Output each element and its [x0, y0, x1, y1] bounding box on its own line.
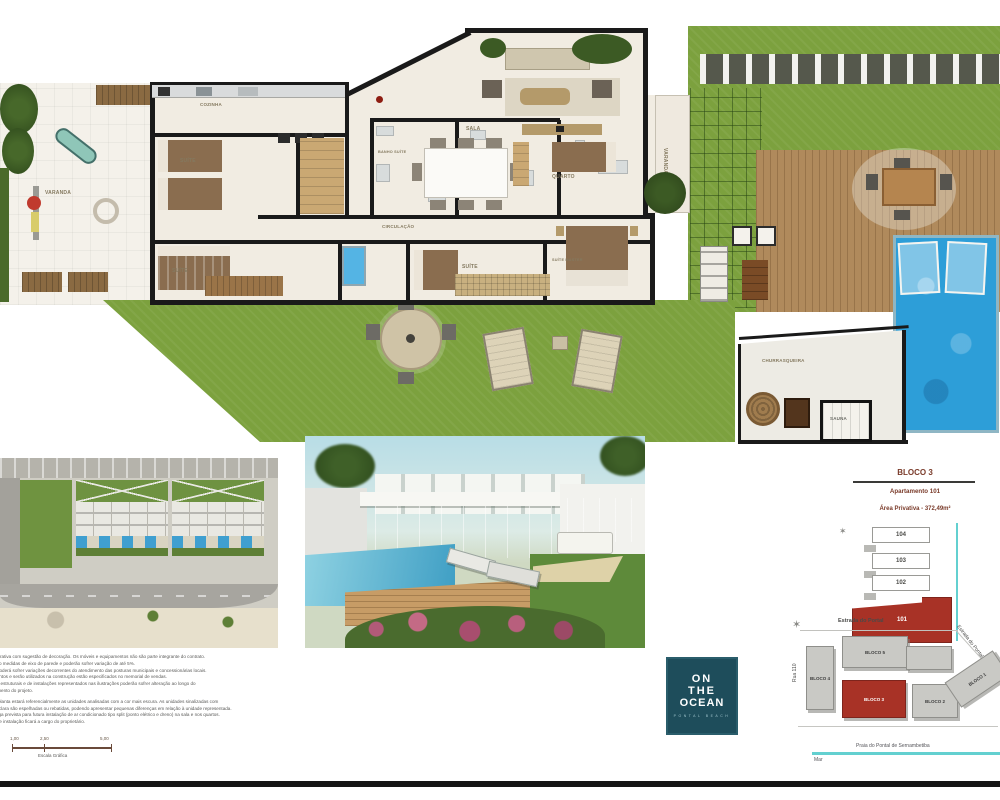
- planter-box: [732, 226, 752, 246]
- wall: [370, 120, 374, 215]
- bed-blanket: [566, 270, 628, 286]
- logo-line2: THE: [688, 686, 716, 697]
- dining-chair: [430, 200, 446, 210]
- stack-balcony: [864, 593, 876, 600]
- room-label: CIRCULAÇÃO: [382, 224, 414, 229]
- logo-line3: OCEAN: [680, 698, 725, 709]
- site-block-4: BLOCO 4: [806, 646, 834, 710]
- scale-bar: 1,00 2,50 5,00 Escala Gráfica: [10, 736, 140, 764]
- dining-chair: [486, 138, 502, 148]
- bloco-title: BLOCO 3: [845, 468, 985, 477]
- title-underline: [853, 481, 975, 483]
- exercise-board: [31, 212, 39, 232]
- aerial-building: [172, 502, 264, 536]
- garden-chair: [442, 324, 456, 340]
- wall: [370, 118, 560, 122]
- grill: [784, 398, 810, 428]
- stack-floor-label: 102: [896, 580, 906, 586]
- dining-chair: [458, 138, 474, 148]
- bench: [96, 85, 150, 105]
- bottom-rule: [0, 781, 1000, 787]
- wall: [406, 244, 410, 302]
- scale-tick-label: 5,00: [100, 736, 109, 741]
- wall: [150, 300, 655, 305]
- brochure-page: VARANDA CHURRASQUEIRA SAUNA: [0, 0, 1000, 800]
- room-label: SUÍTE: [172, 268, 188, 274]
- garden-cabinet: [742, 260, 768, 300]
- garden-chair: [366, 324, 380, 340]
- site-block-label: BLOCO 4: [810, 676, 830, 681]
- site-block-3-highlighted: BLOCO 3: [842, 680, 906, 718]
- disclaimer-line: camentos e serão utilizados na construçã…: [0, 674, 318, 681]
- disclaimer-line: entos estruturais e de instalações repre…: [0, 681, 318, 688]
- dining-table: [424, 148, 508, 198]
- render-table-chairs: [557, 532, 613, 554]
- outdoor-chair: [894, 158, 910, 168]
- aerial-green-roof: [76, 480, 168, 502]
- disclaimer-line: as são medidas de eixo de parede e poder…: [0, 661, 318, 668]
- disclaimer-line: entrega prevista para futura instalação …: [0, 712, 318, 719]
- aerial-green-roof: [172, 480, 264, 502]
- aerial-pools: [76, 536, 168, 548]
- render-palm: [315, 444, 375, 488]
- site-block-5-annex: [906, 646, 952, 670]
- disclaimer-line: ária poderá sofrer variações decorrentes…: [0, 668, 318, 675]
- scale-tick-label: 1,00: [10, 736, 19, 741]
- site-block-5: BLOCO 5: [842, 636, 908, 668]
- room-label: VARANDA: [45, 190, 71, 196]
- bed-pillow: [158, 178, 168, 210]
- bench: [68, 272, 108, 292]
- street-label-left: Rua 110: [792, 663, 798, 682]
- nightstand: [630, 226, 638, 236]
- aerial-top-buildings: [0, 458, 278, 478]
- stack-floor: 103: [872, 553, 930, 569]
- bed-pillow: [158, 246, 230, 256]
- coffee-table: [520, 88, 570, 105]
- shoreline: [812, 752, 1000, 755]
- disclaimer-line: mais clara são espelhadas ou rebatidas, …: [0, 706, 318, 713]
- bench: [205, 276, 283, 296]
- armchair: [482, 80, 502, 98]
- site-block-label: BLOCO 3: [864, 697, 884, 702]
- outdoor-table: [882, 168, 936, 206]
- aerial-site-plan: [0, 458, 278, 648]
- dining-chair: [458, 200, 474, 210]
- room-label: CHURRASQUEIRA: [762, 358, 805, 363]
- pool-lounger: [945, 241, 988, 295]
- dining-chair: [430, 138, 446, 148]
- stack-floor: 102: [872, 575, 930, 591]
- aerial-road-left: [0, 478, 20, 586]
- stack-floor-label: 104: [896, 532, 906, 538]
- exercise-ball: [27, 196, 41, 210]
- compass-icon: ✶: [839, 526, 847, 537]
- area-label: Área Privativa - 372,49m²: [845, 506, 985, 512]
- wicker-sofa: [455, 274, 550, 296]
- aerial-pools: [172, 536, 264, 548]
- bar-stool: [278, 133, 290, 143]
- tv: [556, 126, 564, 132]
- hedge: [0, 168, 9, 302]
- stack-balcony: [864, 545, 876, 552]
- sink: [196, 87, 212, 96]
- sea-label: Mar: [814, 757, 823, 763]
- entrance-marker: [376, 96, 383, 103]
- site-block-label: BLOCO 1: [967, 671, 986, 686]
- toilet: [376, 164, 390, 182]
- bed-pillow: [158, 140, 168, 172]
- wardrobe: [513, 142, 529, 186]
- plant: [572, 34, 632, 64]
- bed-pillow: [606, 142, 616, 172]
- aerial-hedge: [172, 548, 264, 556]
- wall: [258, 215, 655, 219]
- site-map: ✶ Estrada do Portal Rua 110 Estrada do P…: [788, 610, 1000, 772]
- disclaimer-line: é ilustrativa com sugestão de decoração.…: [0, 654, 318, 661]
- nightstand: [556, 226, 564, 236]
- wardrobe: [300, 138, 344, 214]
- room-label: SAUNA: [830, 416, 847, 421]
- street-line: [798, 726, 998, 727]
- aerial-hedge: [76, 548, 168, 556]
- outdoor-chair: [940, 174, 952, 190]
- side-table: [552, 336, 568, 350]
- garden-chair: [398, 372, 414, 384]
- bed-pillow: [414, 250, 423, 290]
- dining-chair: [486, 200, 502, 210]
- street-line: [800, 630, 958, 631]
- kitchen-counter: [292, 85, 345, 98]
- bbq-wall: [738, 344, 741, 444]
- bbq-wall: [902, 330, 906, 444]
- render-palm: [600, 436, 645, 476]
- scale-line: [12, 747, 112, 749]
- scale-tick: [12, 744, 13, 752]
- room-label: SUÍTE MASTER: [552, 258, 583, 262]
- floor-plan: VARANDA CHURRASQUEIRA SAUNA: [0, 18, 1000, 448]
- aerial-park: [20, 480, 72, 568]
- scale-tick-label: 2,50: [40, 736, 49, 741]
- on-the-ocean-logo: ON THE OCEAN PONTAL BEACH: [666, 657, 738, 735]
- palm-tree: [0, 84, 38, 134]
- outdoor-chair: [894, 210, 910, 220]
- exterior-rendering: [305, 436, 645, 648]
- disclaimer-line: ação e instalação ficará a cargo do prop…: [0, 719, 318, 726]
- kitchen-appliance: [238, 87, 258, 96]
- kitchen-counter: [152, 85, 292, 98]
- umbrella-pole: [406, 334, 415, 343]
- room-label: SUÍTE: [180, 158, 196, 164]
- plant: [480, 38, 506, 58]
- dining-chair: [412, 163, 422, 181]
- armchair: [592, 80, 612, 98]
- outdoor-chair: [866, 174, 878, 190]
- jacuzzi: [342, 246, 366, 286]
- pool-lounger: [898, 241, 941, 295]
- wall: [345, 85, 349, 217]
- bench: [22, 272, 62, 292]
- aerial-building: [76, 502, 168, 536]
- room-label: SALA: [466, 126, 480, 132]
- bathroom-sink: [376, 126, 394, 136]
- street-label-right: Estrada do Pontal: [955, 624, 984, 659]
- logo-subtitle: PONTAL BEACH: [674, 714, 731, 718]
- fence: [700, 54, 1000, 84]
- beach-label: Praia do Pontal de Sernambetiba: [856, 743, 930, 749]
- wicker-table: [746, 392, 780, 426]
- planter-box: [756, 226, 776, 246]
- outdoor-counter: [700, 246, 728, 302]
- scale-caption: Escala Gráfica: [38, 753, 67, 758]
- sauna-room: [820, 400, 872, 442]
- site-block-label: BLOCO 5: [865, 650, 885, 655]
- wall: [150, 82, 155, 305]
- stove: [158, 87, 170, 96]
- scale-tick: [44, 744, 45, 752]
- room-label: SUÍTE: [462, 264, 478, 270]
- stack-floor-label: 103: [896, 558, 906, 564]
- stack-floor: 104: [872, 527, 930, 543]
- apartment-label: Apartamento 101: [845, 488, 985, 495]
- logo-line1: ON: [692, 674, 713, 685]
- tree: [644, 172, 686, 214]
- room-label: BANHO SUÍTE: [378, 150, 406, 154]
- disclaimer-line: esta planta estará referencialmente as u…: [0, 699, 318, 706]
- terrace-ring: [93, 198, 119, 224]
- room-label: COZINHA: [200, 102, 222, 107]
- aerial-beach: [0, 608, 278, 648]
- scale-tick: [111, 744, 112, 752]
- room-label: VARANDA: [662, 148, 668, 174]
- site-block-label: BLOCO 2: [925, 699, 945, 704]
- street-label-top: Estrada do Portal: [838, 618, 884, 624]
- room-label: QUARTO: [552, 174, 575, 180]
- wall: [465, 28, 647, 33]
- aerial-road: [0, 584, 278, 608]
- wall: [650, 213, 655, 305]
- disclaimer-block: é ilustrativa com sugestão de decoração.…: [0, 654, 318, 726]
- disclaimer-line: volvimento do projeto.: [0, 688, 318, 695]
